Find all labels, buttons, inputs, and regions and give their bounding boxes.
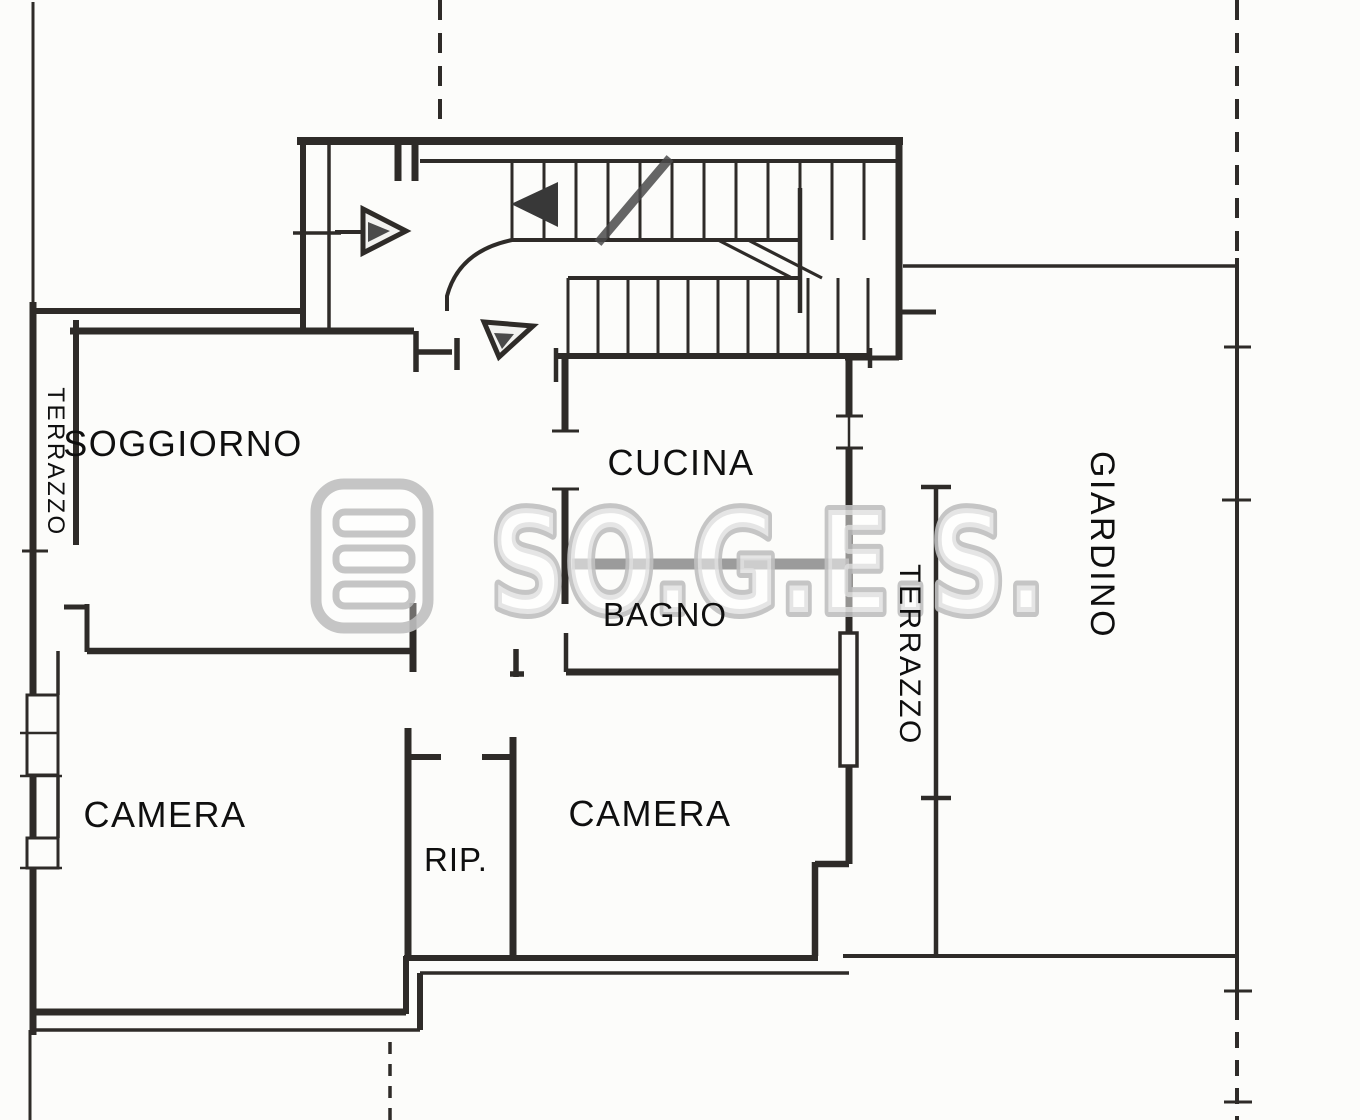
room-label-giardino: GIARDINO: [1083, 451, 1121, 639]
room-label-rip: RIP.: [424, 841, 488, 878]
hall-step-walls: [416, 331, 457, 372]
bagno-terrace-window: [840, 633, 857, 766]
bagno-bottom-wall-left-cap: [510, 649, 524, 677]
camera-left-window-1: [27, 695, 58, 775]
stairs-upper-flight-treads: [512, 161, 864, 240]
room-label-terrazzo-right: TERRAZZO: [893, 564, 926, 746]
room-label-terrazzo-left: TERRAZZO: [42, 387, 69, 536]
floor-plan-drawing: SO.G.E.S. SOGGIORNO CUCINA BAGNO CAMERA …: [0, 0, 1360, 1120]
room-label-camera-right: CAMERA: [568, 793, 731, 834]
room-label-camera-left: CAMERA: [83, 794, 246, 835]
camera-right-corner-step: [815, 862, 849, 956]
room-label-soggiorno: SOGGIORNO: [63, 423, 303, 464]
watermark-text: SO.G.E.S.: [490, 483, 1046, 646]
cucina-door-ticks: [552, 431, 579, 489]
soges-logo-icon: [316, 484, 428, 628]
stairs-lower-flight-treads: [568, 278, 868, 356]
terrazzo-door-jamb: [64, 604, 88, 652]
camera-left-window-2: [27, 838, 58, 868]
stairs-switchback-diagonals: [718, 240, 822, 278]
room-label-bagno: BAGNO: [603, 596, 727, 633]
stairs-up-arrow-icon: [511, 182, 558, 227]
direction-arrows: [335, 209, 533, 357]
entrance-door-jambs: [398, 141, 415, 181]
floor-plan: SO.G.E.S. SOGGIORNO CUCINA BAGNO CAMERA …: [0, 0, 1360, 1120]
room-label-cucina: CUCINA: [607, 442, 754, 483]
stairs-landing-curve: [447, 240, 512, 311]
bottom-step-wall: [406, 956, 420, 1030]
